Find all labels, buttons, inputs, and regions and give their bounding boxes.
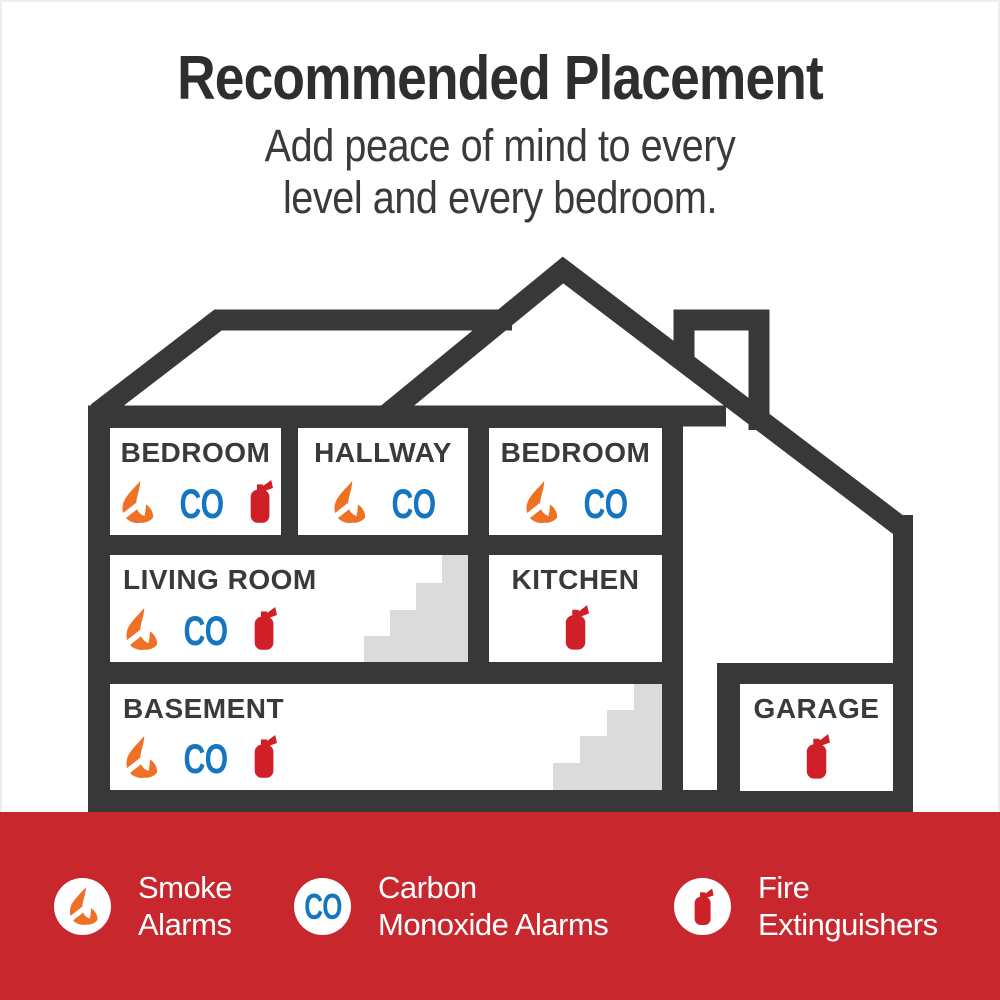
legend-band: Smoke Alarms CO Carbon Monoxide Alarms F…: [0, 812, 1000, 1000]
room-hallway: HALLWAY CO: [298, 428, 468, 535]
icon-row: CO: [123, 733, 277, 778]
smoke-alarm-icon: [67, 887, 99, 925]
smoke-alarm-icon: [523, 481, 559, 523]
infographic-canvas: Recommended Placement Add peace of mind …: [0, 0, 1000, 1000]
room-garage: GARAGE: [740, 684, 893, 791]
fire-extinguisher-icon: [563, 603, 589, 650]
co-alarm-icon: CO: [184, 610, 228, 652]
fire-extinguisher-icon: [804, 732, 830, 779]
legend-label: Carbon Monoxide Alarms: [378, 869, 608, 943]
legend-label-line-2: Alarms: [138, 906, 232, 943]
room-living-room: LIVING ROOM CO: [110, 555, 468, 662]
smoke-alarm-icon: [123, 736, 159, 778]
room-basement: BASEMENT CO: [110, 684, 662, 790]
room-kitchen: KITCHEN: [489, 555, 662, 662]
foundation-bar: [88, 790, 913, 812]
staircase: [553, 684, 662, 790]
smoke-alarm-icon: [119, 481, 155, 523]
co-alarm-icon: CO: [179, 483, 223, 525]
legend-circle: CO: [294, 878, 351, 935]
legend-label: Fire Extinguishers: [758, 869, 938, 943]
fire-extinguisher-icon: [252, 733, 277, 778]
legend-label-line-1: Carbon: [378, 869, 608, 906]
room-label: LIVING ROOM: [123, 565, 317, 596]
room-bedroom-2: BEDROOM CO: [489, 428, 662, 535]
legend-label-line-2: Extinguishers: [758, 906, 938, 943]
legend-label-line-2: Monoxide Alarms: [378, 906, 608, 943]
icon-row: [804, 732, 830, 779]
legend-item-fire-extinguishers: Fire Extinguishers: [674, 812, 938, 1000]
legend-item-co-alarms: CO Carbon Monoxide Alarms: [294, 812, 608, 1000]
co-alarm-icon: CO: [391, 483, 435, 525]
room-bedroom-1: BEDROOM CO: [110, 428, 281, 535]
legend-circle: [674, 878, 731, 935]
legend-label-line-1: Smoke: [138, 869, 232, 906]
fire-extinguisher-icon: [692, 887, 714, 925]
co-alarm-icon: CO: [584, 483, 628, 525]
icon-row: CO: [123, 605, 277, 650]
co-alarm-icon: CO: [184, 738, 228, 780]
staircase: [364, 555, 468, 662]
room-label: HALLWAY: [314, 438, 452, 469]
icon-row: CO: [119, 478, 273, 523]
room-label: BASEMENT: [123, 694, 284, 725]
right-wall: [893, 515, 913, 812]
fire-extinguisher-icon: [248, 478, 273, 523]
icon-row: CO: [523, 481, 628, 523]
smoke-alarm-icon: [331, 481, 367, 523]
legend-circle: [54, 878, 111, 935]
icon-row: [563, 603, 589, 650]
co-alarm-icon: CO: [304, 889, 341, 925]
fire-extinguisher-icon: [252, 605, 277, 650]
room-label: GARAGE: [754, 694, 880, 725]
legend-item-smoke-alarms: Smoke Alarms: [54, 812, 232, 1000]
room-label: BEDROOM: [501, 438, 651, 469]
room-label: KITCHEN: [512, 565, 640, 596]
smoke-alarm-icon: [123, 608, 159, 650]
icon-row: CO: [331, 481, 436, 523]
legend-label: Smoke Alarms: [138, 869, 232, 943]
legend-label-line-1: Fire: [758, 869, 938, 906]
room-label: BEDROOM: [121, 438, 271, 469]
